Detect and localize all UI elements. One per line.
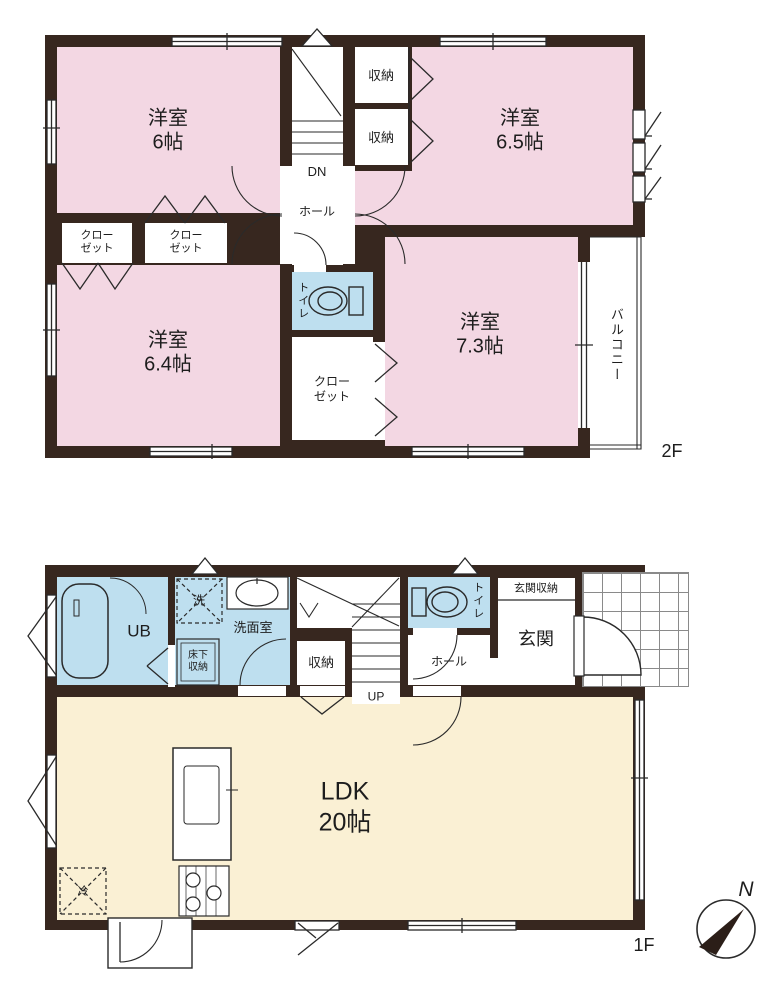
ldk-label: LDK20帖 bbox=[319, 777, 372, 838]
window-2f-bottom-right bbox=[412, 444, 524, 459]
hall-ldk-door bbox=[413, 686, 461, 745]
washroom-door bbox=[238, 639, 286, 696]
storage-label-1f: 収納 bbox=[308, 655, 334, 671]
kitchen-counter bbox=[173, 748, 238, 860]
casement-window-1f-ldk bbox=[28, 755, 56, 848]
window-2f-top-left bbox=[172, 33, 282, 50]
stairs-down-label: DN bbox=[308, 164, 327, 180]
compass-north-label: N bbox=[738, 877, 753, 903]
unit-bath-label: UB bbox=[127, 622, 151, 643]
window-2f-left-upper bbox=[43, 100, 60, 164]
underfloor-storage-label: 床下収納 bbox=[188, 650, 208, 674]
closet-1-door-2f bbox=[62, 263, 133, 289]
window-2f-top-right bbox=[440, 33, 546, 50]
stairs-2f bbox=[292, 49, 343, 154]
toilet-label-1f: トイレ bbox=[470, 582, 483, 621]
back-door bbox=[108, 918, 192, 968]
window-2f-bottom-left bbox=[150, 444, 232, 459]
closet-label-2f-1: クローゼット bbox=[81, 230, 114, 257]
storage-label-2f-top: 収納 bbox=[368, 68, 394, 84]
roof-vent-2f bbox=[302, 29, 332, 46]
window-1f-right-slider bbox=[631, 700, 648, 900]
closet-2-door-2f bbox=[145, 196, 225, 223]
closet-label-2f-center: クローゼット bbox=[314, 374, 350, 403]
room-label-yoshitsu-6: 洋室6帖 bbox=[148, 107, 188, 156]
room-label-yoshitsu-65: 洋室6.5帖 bbox=[496, 107, 544, 156]
refrigerator-label: 冷 bbox=[78, 885, 89, 898]
hall-label-1f: ホール bbox=[431, 655, 467, 670]
balcony-sliding-door bbox=[575, 262, 593, 428]
casement-windows-2f-right bbox=[633, 110, 661, 202]
washroom-label: 洗面室 bbox=[233, 620, 272, 636]
storage-label-2f-bottom: 収納 bbox=[368, 130, 394, 146]
toilet-label-2f: トイレ bbox=[295, 282, 308, 321]
floor-plan-page: 洋室6帖 洋室6.5帖 洋室6.4帖 洋室7.3帖 収納 収納 クローゼット ク… bbox=[0, 0, 776, 1000]
entrance-door bbox=[574, 616, 641, 676]
washer-label: 洗 bbox=[193, 594, 205, 609]
room-label-yoshitsu-73: 洋室7.3帖 bbox=[456, 311, 504, 360]
compass-icon bbox=[697, 900, 755, 958]
stove-icon bbox=[179, 866, 229, 916]
window-1f-bottom-slider bbox=[408, 918, 516, 933]
hall-entrance-opening bbox=[490, 658, 498, 685]
casement-window-1f-bath bbox=[28, 595, 56, 677]
toilet-door-1f bbox=[413, 628, 457, 679]
roof-vent-1f-left bbox=[192, 558, 218, 574]
stairs-up-label: UP bbox=[368, 690, 385, 705]
floor-label-1f: 1F bbox=[633, 935, 654, 957]
toilet-icon-2f bbox=[309, 287, 363, 315]
roof-vent-1f-right bbox=[452, 558, 478, 574]
room-label-yoshitsu-64: 洋室6.4帖 bbox=[144, 329, 192, 378]
toilet-icon-1f bbox=[412, 587, 467, 617]
closet-center-door-2f bbox=[373, 342, 397, 440]
window-1f-bottom-check bbox=[295, 921, 339, 955]
storage-doors-2f bbox=[409, 48, 433, 164]
entrance-label: 玄関 bbox=[518, 629, 554, 651]
balcony-label: バルコニー bbox=[608, 308, 624, 383]
window-2f-left-lower bbox=[43, 284, 60, 376]
floor-label-2f: 2F bbox=[661, 441, 682, 463]
storage-1f-door bbox=[300, 686, 345, 714]
linework-overlay bbox=[0, 0, 776, 1000]
toilet-door-2f bbox=[294, 233, 326, 272]
hall-label-2f: ホール bbox=[299, 205, 335, 220]
entrance-storage-label: 玄関収納 bbox=[514, 582, 558, 595]
sink-icon bbox=[227, 577, 288, 609]
bath-door bbox=[147, 645, 175, 687]
closet-label-2f-2: クローゼット bbox=[170, 230, 203, 257]
